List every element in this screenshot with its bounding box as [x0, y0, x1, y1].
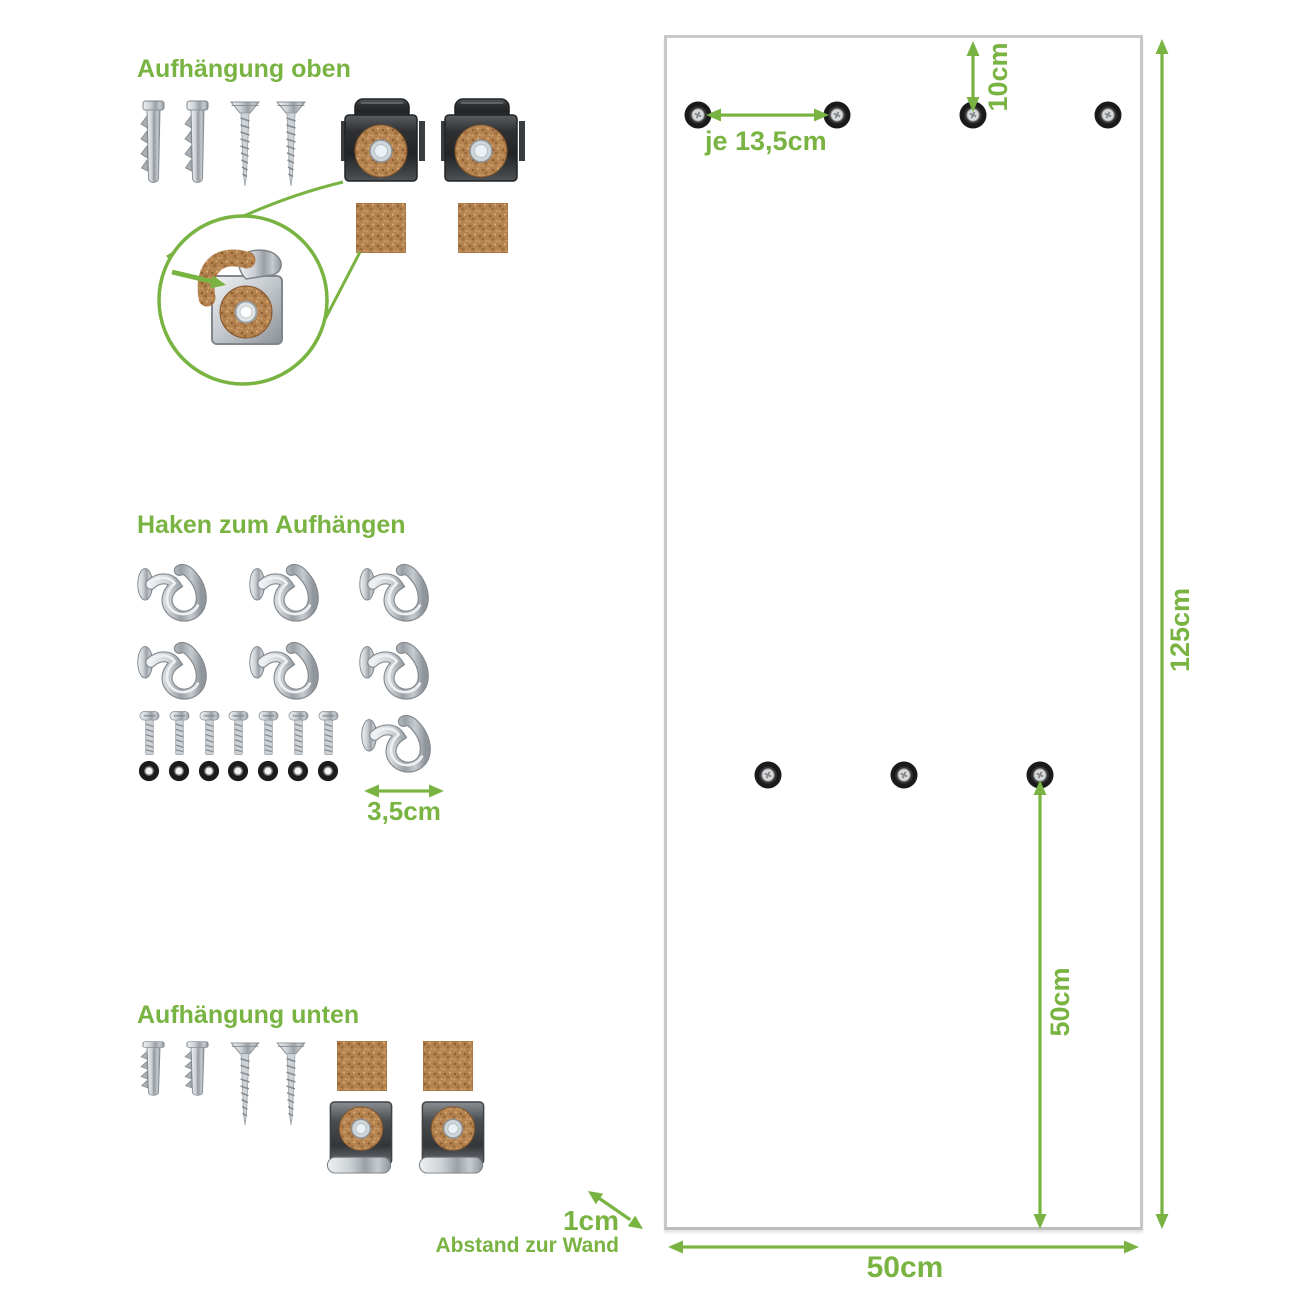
wood-screw-icon: [229, 99, 261, 189]
clip-detail-illustration: [172, 250, 282, 344]
wall-distance-value: 1cm: [541, 1206, 641, 1235]
heading-top-mount: Aufhängung oben: [137, 55, 351, 84]
machine-screw-icon: [288, 709, 309, 758]
cork-pad-icon: [458, 203, 508, 253]
wall-distance-caption: Abstand zur Wand: [427, 1235, 619, 1257]
cork-pad-icon: [337, 1041, 387, 1091]
cork-pad-icon: [423, 1041, 473, 1091]
washer-icon: [198, 760, 220, 782]
hook-icon: [135, 629, 220, 703]
machine-screw-icon: [169, 709, 190, 758]
wall-plug-icon: [184, 100, 211, 188]
mounting-clip-top-icon: [441, 97, 525, 185]
machine-screw-icon: [228, 709, 249, 758]
cork-pad-icon: [356, 203, 406, 253]
hook-icon: [135, 551, 220, 625]
machine-screw-icon: [318, 709, 339, 758]
heading-bottom-mount: Aufhängung unten: [137, 1001, 359, 1030]
machine-screw-icon: [199, 709, 220, 758]
mounting-clip-bottom-icon: [327, 1101, 395, 1178]
washer-icon: [317, 760, 339, 782]
detail-pointer-arrow: [172, 272, 226, 289]
hook-icon: [247, 551, 332, 625]
bottom-hole-offset-label: 50cm: [1046, 957, 1074, 1047]
wall-plug-icon: [140, 1041, 167, 1099]
hook-icon: [247, 629, 332, 703]
hook-icon: [359, 702, 444, 776]
hook-icon: [357, 629, 442, 703]
hole-spacing-label: je 13,5cm: [705, 127, 827, 155]
clip-detail-circle: [159, 216, 327, 384]
washer-icon: [287, 760, 309, 782]
mounting-clip-top-icon: [341, 97, 425, 185]
panel-height-label: 125cm: [1166, 585, 1194, 675]
washer-icon: [168, 760, 190, 782]
heading-hooks: Haken zum Aufhängen: [137, 511, 406, 540]
washer-icon: [257, 760, 279, 782]
wood-screw-icon: [275, 99, 307, 189]
wood-screw-icon: [229, 1040, 261, 1128]
top-offset-label: 10cm: [984, 42, 1012, 112]
wood-screw-icon: [275, 1040, 307, 1128]
machine-screw-icon: [258, 709, 279, 758]
connector-line: [307, 252, 360, 354]
hook-icon: [357, 551, 442, 625]
machine-screw-icon: [139, 709, 160, 758]
glass-panel-outline: [664, 35, 1143, 1230]
washer-icon: [138, 760, 160, 782]
connector-line: [167, 182, 343, 257]
wall-plug-icon: [140, 100, 167, 188]
mounting-clip-bottom-icon: [419, 1101, 487, 1178]
wall-plug-icon: [184, 1041, 211, 1099]
hook-width-label: 3,5cm: [364, 798, 444, 825]
assembly-instruction-diagram: Aufhängung oben Haken zum Aufhängen 3,5c…: [0, 0, 1300, 1300]
panel-width-label: 50cm: [845, 1252, 965, 1284]
washer-icon: [227, 760, 249, 782]
